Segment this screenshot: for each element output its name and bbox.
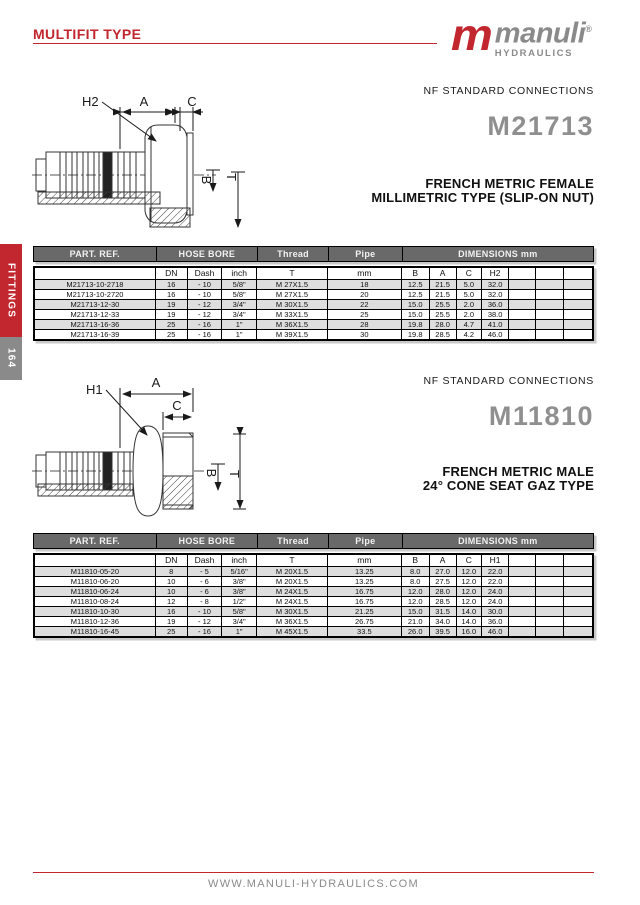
table-cell: 12.0 <box>401 597 429 607</box>
section1-title-line1: FRENCH METRIC FEMALE <box>371 177 594 191</box>
table-cell: - 16 <box>187 320 222 330</box>
table-cell: 12 <box>155 597 187 607</box>
table-cell <box>509 587 536 597</box>
page-title: MULTIFIT TYPE <box>33 26 141 42</box>
table-row: M11810-05-208- 55/16"M 20X1.513.258.027.… <box>34 567 593 577</box>
table-cell: 1" <box>222 330 257 341</box>
table-cell <box>536 267 563 280</box>
section2-title-line2: 24° CONE SEAT GAZ TYPE <box>423 479 594 493</box>
table-cell: 16 <box>155 607 187 617</box>
table-cell <box>509 280 536 290</box>
table-cell: 41.0 <box>482 320 509 330</box>
table-cell: 5/8" <box>222 290 257 300</box>
brand-name-text: manuli <box>495 18 585 50</box>
table-cell: 12.5 <box>401 290 429 300</box>
table-cell <box>509 290 536 300</box>
leader-h1 <box>106 390 147 435</box>
table-cell <box>563 320 593 330</box>
table-row: M11810-10-3016- 105/8"M 30X1.521.2515.03… <box>34 607 593 617</box>
table-cell: 25.5 <box>429 300 456 310</box>
table-cell <box>536 280 563 290</box>
table1-group-header: PART. REF. HOSE BORE Thread Pipe DIMENSI… <box>33 246 594 262</box>
table-cell <box>509 607 536 617</box>
footer-website: WWW.MANULI-HYDRAULICS.COM <box>33 878 594 890</box>
table-cell: 14.0 <box>456 607 482 617</box>
table-cell: DN <box>155 267 187 280</box>
brand-logo: m manuli® HYDRAULICS <box>451 16 616 62</box>
table-cell: 27.5 <box>429 577 456 587</box>
table-cell <box>563 607 593 617</box>
table-row: M11810-08-2412- 81/2"M 24X1.516.7512.028… <box>34 597 593 607</box>
table2-header-dimensions: DIMENSIONS mm <box>402 534 593 548</box>
table-cell: M21713-12-33 <box>34 310 155 320</box>
table-cell <box>34 554 155 567</box>
table-cell: 10 <box>155 587 187 597</box>
table-cell: 19 <box>155 617 187 627</box>
table-cell: 3/4" <box>222 617 257 627</box>
table-cell <box>509 577 536 587</box>
table-cell: 22.0 <box>482 577 509 587</box>
table-cell: 12.0 <box>456 577 482 587</box>
table-cell: M11810-12-36 <box>34 617 155 627</box>
table-cell: 12.0 <box>401 587 429 597</box>
table-cell <box>536 310 563 320</box>
table-cell: inch <box>222 267 257 280</box>
table-cell: A <box>429 554 456 567</box>
table-cell: 5/16" <box>222 567 257 577</box>
table-cell: 13.25 <box>327 577 401 587</box>
table-row: M11810-16-4525- 161"M 45X1.533.526.039.5… <box>34 627 593 638</box>
table1-header-part-ref: PART. REF. <box>34 247 156 261</box>
table-cell: 38.0 <box>482 310 509 320</box>
table-cell <box>536 597 563 607</box>
table-row: M21713-12-3319- 123/4"M 33X1.52515.025.5… <box>34 310 593 320</box>
table-cell <box>509 330 536 341</box>
table-cell: 3/8" <box>222 587 257 597</box>
table1-body: DNDashinchTmmBACH2M21713-10-271816- 105/… <box>33 266 594 341</box>
dimension-label-t: T <box>224 173 239 181</box>
table-cell <box>563 577 593 587</box>
table-cell <box>509 554 536 567</box>
table-cell: Dash <box>187 267 222 280</box>
registered-mark: ® <box>585 24 591 34</box>
table-cell: 15.0 <box>401 607 429 617</box>
table-cell: M11810-06-20 <box>34 577 155 587</box>
table-cell: 27.0 <box>429 567 456 577</box>
table-cell: M 24X1.5 <box>256 597 327 607</box>
table-cell: 4.2 <box>456 330 482 341</box>
table-row: M21713-10-272016- 105/8"M 27X1.52012.521… <box>34 290 593 300</box>
table-cell: DN <box>155 554 187 567</box>
dimension-c <box>163 412 191 430</box>
table-cell <box>563 267 593 280</box>
table-cell <box>563 587 593 597</box>
table-cell: 1/2" <box>222 597 257 607</box>
table-cell <box>509 267 536 280</box>
table-cell: 16 <box>155 290 187 300</box>
table-cell: 5/8" <box>222 280 257 290</box>
table-cell: M 24X1.5 <box>256 587 327 597</box>
table-cell: 25 <box>155 320 187 330</box>
section-hatch <box>38 476 193 509</box>
table-cell: 36.0 <box>482 300 509 310</box>
brand-text: manuli® HYDRAULICS <box>495 16 592 59</box>
table-cell: 25 <box>155 330 187 341</box>
table-cell <box>563 280 593 290</box>
table-cell: mm <box>327 554 401 567</box>
table-cell: 24.0 <box>482 597 509 607</box>
column-header-row: DNDashinchTmmBACH2 <box>34 267 593 280</box>
table-row: M21713-16-3925- 161"M 39X1.53019.828.54.… <box>34 330 593 341</box>
table-cell: - 6 <box>187 587 222 597</box>
table2-header-hose-bore: HOSE BORE <box>156 534 258 548</box>
table-cell <box>563 567 593 577</box>
table-cell <box>563 300 593 310</box>
table-cell: 28.0 <box>429 587 456 597</box>
table-cell <box>563 310 593 320</box>
table-cell <box>536 567 563 577</box>
spec-table-m21713: PART. REF. HOSE BORE Thread Pipe DIMENSI… <box>33 246 594 341</box>
hex-nut <box>133 426 163 516</box>
table-cell: 16.0 <box>456 627 482 638</box>
table-cell: M21713-12-30 <box>34 300 155 310</box>
dimension-label-c: C <box>172 398 181 413</box>
table-cell: T <box>256 267 327 280</box>
table-cell: 21.0 <box>401 617 429 627</box>
table-cell: B <box>401 554 429 567</box>
table-cell: M21713-16-39 <box>34 330 155 341</box>
table-cell: H2 <box>482 267 509 280</box>
table-cell: M 30X1.5 <box>256 300 327 310</box>
table-cell: - 16 <box>187 330 222 341</box>
title-underline <box>33 43 437 44</box>
table-cell: M 30X1.5 <box>256 607 327 617</box>
table-row: M11810-12-3619- 123/4"M 36X1.526.7521.03… <box>34 617 593 627</box>
table-cell: B <box>401 267 429 280</box>
table-cell: 15.0 <box>401 310 429 320</box>
table-cell: 21.5 <box>429 280 456 290</box>
table-cell: Dash <box>187 554 222 567</box>
table1-header-hose-bore: HOSE BORE <box>156 247 258 261</box>
table-cell: 14.0 <box>456 617 482 627</box>
table-cell <box>536 617 563 627</box>
table-cell <box>563 330 593 341</box>
table-cell: 28.5 <box>429 597 456 607</box>
table-cell: 33.5 <box>327 627 401 638</box>
table-cell: 3/8" <box>222 577 257 587</box>
catalog-page: MULTIFIT TYPE m manuli® HYDRAULICS FITTI… <box>0 0 640 905</box>
table-cell: M11810-10-30 <box>34 607 155 617</box>
table1-header-pipe: Pipe <box>328 247 402 261</box>
table-cell: 12.5 <box>401 280 429 290</box>
table-cell: 5.0 <box>456 280 482 290</box>
table-cell: 25 <box>327 310 401 320</box>
table-cell <box>536 300 563 310</box>
dimension-label-t: T <box>227 470 242 478</box>
dimension-label-h1: H1 <box>86 382 103 397</box>
table-cell: M11810-08-24 <box>34 597 155 607</box>
table1-header-dimensions: DIMENSIONS mm <box>402 247 593 261</box>
section1-standard-label: NF STANDARD CONNECTIONS <box>424 85 595 97</box>
table-cell: 20 <box>327 290 401 300</box>
table-cell: H1 <box>482 554 509 567</box>
table-cell <box>509 627 536 638</box>
table-cell <box>536 290 563 300</box>
table-row: M11810-06-2410- 63/8"M 24X1.516.7512.028… <box>34 587 593 597</box>
table-cell: 3/4" <box>222 300 257 310</box>
brand-name: manuli® <box>495 16 592 47</box>
table-cell <box>536 587 563 597</box>
table-cell: 8.0 <box>401 567 429 577</box>
table-cell <box>509 300 536 310</box>
table-cell: M 36X1.5 <box>256 320 327 330</box>
table-cell: 26.75 <box>327 617 401 627</box>
table-cell: 21.5 <box>429 290 456 300</box>
table-cell: M 27X1.5 <box>256 280 327 290</box>
table2-body: DNDashinchTmmBACH1M11810-05-208- 55/16"M… <box>33 553 594 638</box>
table-cell: 5/8" <box>222 607 257 617</box>
table-cell <box>536 607 563 617</box>
table-cell: 18 <box>327 280 401 290</box>
table-cell <box>563 617 593 627</box>
table-cell <box>509 310 536 320</box>
table-cell: 28.0 <box>429 320 456 330</box>
section1-title-line2: MILLIMETRIC TYPE (SLIP-ON NUT) <box>371 191 594 205</box>
table2-header-thread: Thread <box>257 534 328 548</box>
footer-divider <box>33 872 594 873</box>
table-cell <box>509 597 536 607</box>
table-cell: 30.0 <box>482 607 509 617</box>
dimension-label-a: A <box>152 375 161 390</box>
table2-header-pipe: Pipe <box>328 534 402 548</box>
table-cell: 4.7 <box>456 320 482 330</box>
table-cell: 1" <box>222 627 257 638</box>
table-cell <box>563 290 593 300</box>
table-cell: 12.0 <box>456 597 482 607</box>
table-cell: M21713-10-2718 <box>34 280 155 290</box>
table-row: M11810-06-2010- 63/8"M 20X1.513.258.027.… <box>34 577 593 587</box>
table2-group-header: PART. REF. HOSE BORE Thread Pipe DIMENSI… <box>33 533 594 549</box>
table-cell: inch <box>222 554 257 567</box>
table-cell: 21.25 <box>327 607 401 617</box>
table-cell: - 16 <box>187 627 222 638</box>
table-row: M21713-16-3625- 161"M 36X1.52819.828.04.… <box>34 320 593 330</box>
table-cell: 16.75 <box>327 597 401 607</box>
spec-table-m11810: PART. REF. HOSE BORE Thread Pipe DIMENSI… <box>33 533 594 638</box>
dimension-label-h2: H2 <box>82 94 99 109</box>
table-cell: M 33X1.5 <box>256 310 327 320</box>
table-cell: 34.0 <box>429 617 456 627</box>
table-cell: 22 <box>327 300 401 310</box>
table-cell: 46.0 <box>482 330 509 341</box>
table-cell: 19.8 <box>401 320 429 330</box>
dimension-label-a: A <box>140 94 149 109</box>
table-cell: - 10 <box>187 290 222 300</box>
table-cell: A <box>429 267 456 280</box>
table-cell: 30 <box>327 330 401 341</box>
table-cell: C <box>456 554 482 567</box>
table-cell: 3/4" <box>222 310 257 320</box>
table-cell: 15.0 <box>401 300 429 310</box>
table-cell: M11810-05-20 <box>34 567 155 577</box>
table-cell: 16 <box>155 280 187 290</box>
table-cell: M11810-06-24 <box>34 587 155 597</box>
table-cell: 36.0 <box>482 617 509 627</box>
table-cell <box>536 577 563 587</box>
table-cell: - 12 <box>187 310 222 320</box>
table-cell: 5.0 <box>456 290 482 300</box>
table-cell <box>34 267 155 280</box>
sidebar-page-number: 164 <box>0 337 22 380</box>
table-cell: 31.5 <box>429 607 456 617</box>
table-cell <box>536 627 563 638</box>
table-cell: 25.5 <box>429 310 456 320</box>
table-cell: - 5 <box>187 567 222 577</box>
section2-standard-label: NF STANDARD CONNECTIONS <box>424 375 595 387</box>
table1-header-thread: Thread <box>257 247 328 261</box>
table-cell: 32.0 <box>482 280 509 290</box>
table-cell <box>536 320 563 330</box>
table-cell: 46.0 <box>482 627 509 638</box>
table-row: M21713-12-3019- 123/4"M 30X1.52215.025.5… <box>34 300 593 310</box>
technical-drawing-female-fitting: A C H2 B T <box>30 85 248 235</box>
table-cell: 19 <box>155 310 187 320</box>
table-cell: mm <box>327 267 401 280</box>
section1-title: FRENCH METRIC FEMALE MILLIMETRIC TYPE (S… <box>371 177 594 205</box>
manuli-logo-icon: m <box>451 17 491 53</box>
table-cell: 12.0 <box>456 587 482 597</box>
table-cell: 8.0 <box>401 577 429 587</box>
table2-header-part-ref: PART. REF. <box>34 534 156 548</box>
table-cell <box>563 627 593 638</box>
table-cell: - 10 <box>187 280 222 290</box>
table-cell: 13.25 <box>327 567 401 577</box>
section1-model-number: M21713 <box>487 111 594 142</box>
table-cell <box>563 554 593 567</box>
sidebar-tab-fittings: FITTINGS <box>0 244 22 337</box>
table-cell: - 6 <box>187 577 222 587</box>
table-cell: 16.75 <box>327 587 401 597</box>
table-cell: C <box>456 267 482 280</box>
table-cell <box>509 320 536 330</box>
section2-title: FRENCH METRIC MALE 24° CONE SEAT GAZ TYP… <box>423 465 594 493</box>
section2-model-number: M11810 <box>489 401 594 432</box>
column-header-row: DNDashinchTmmBACH1 <box>34 554 593 567</box>
table-row: M21713-10-271816- 105/8"M 27X1.51812.521… <box>34 280 593 290</box>
table-cell: 10 <box>155 577 187 587</box>
table-cell: M 20X1.5 <box>256 567 327 577</box>
table-cell: 39.5 <box>429 627 456 638</box>
table-cell: M21713-10-2720 <box>34 290 155 300</box>
table-cell <box>536 330 563 341</box>
table-cell: M 20X1.5 <box>256 577 327 587</box>
table-cell: 28.5 <box>429 330 456 341</box>
table-cell: 2.0 <box>456 300 482 310</box>
table-cell: 28 <box>327 320 401 330</box>
table-cell: 19 <box>155 300 187 310</box>
table-cell: 24.0 <box>482 587 509 597</box>
table-cell: M 27X1.5 <box>256 290 327 300</box>
table-cell: 32.0 <box>482 290 509 300</box>
dimension-label-b: B <box>204 469 219 478</box>
dimension-label-c: C <box>187 94 196 109</box>
table-cell: 25 <box>155 627 187 638</box>
table-cell: 19.8 <box>401 330 429 341</box>
dimension-label-b: B <box>199 176 214 185</box>
table-cell <box>509 617 536 627</box>
table-cell: 26.0 <box>401 627 429 638</box>
table-cell: 2.0 <box>456 310 482 320</box>
table-cell: T <box>256 554 327 567</box>
table-cell: 22.0 <box>482 567 509 577</box>
table-cell: 8 <box>155 567 187 577</box>
table-cell: 1" <box>222 320 257 330</box>
section2-title-line1: FRENCH METRIC MALE <box>423 465 594 479</box>
table-cell: - 10 <box>187 607 222 617</box>
technical-drawing-male-fitting: A C H1 B T <box>30 372 248 524</box>
table-cell: - 8 <box>187 597 222 607</box>
table-cell <box>509 567 536 577</box>
table-cell: 12.0 <box>456 567 482 577</box>
table-cell: M 36X1.5 <box>256 617 327 627</box>
table-cell <box>563 597 593 607</box>
table-cell: M11810-16-45 <box>34 627 155 638</box>
table-cell: - 12 <box>187 300 222 310</box>
table-cell: - 12 <box>187 617 222 627</box>
table-cell: M 45X1.5 <box>256 627 327 638</box>
table-cell: M21713-16-36 <box>34 320 155 330</box>
table-cell <box>536 554 563 567</box>
table-cell: M 39X1.5 <box>256 330 327 341</box>
